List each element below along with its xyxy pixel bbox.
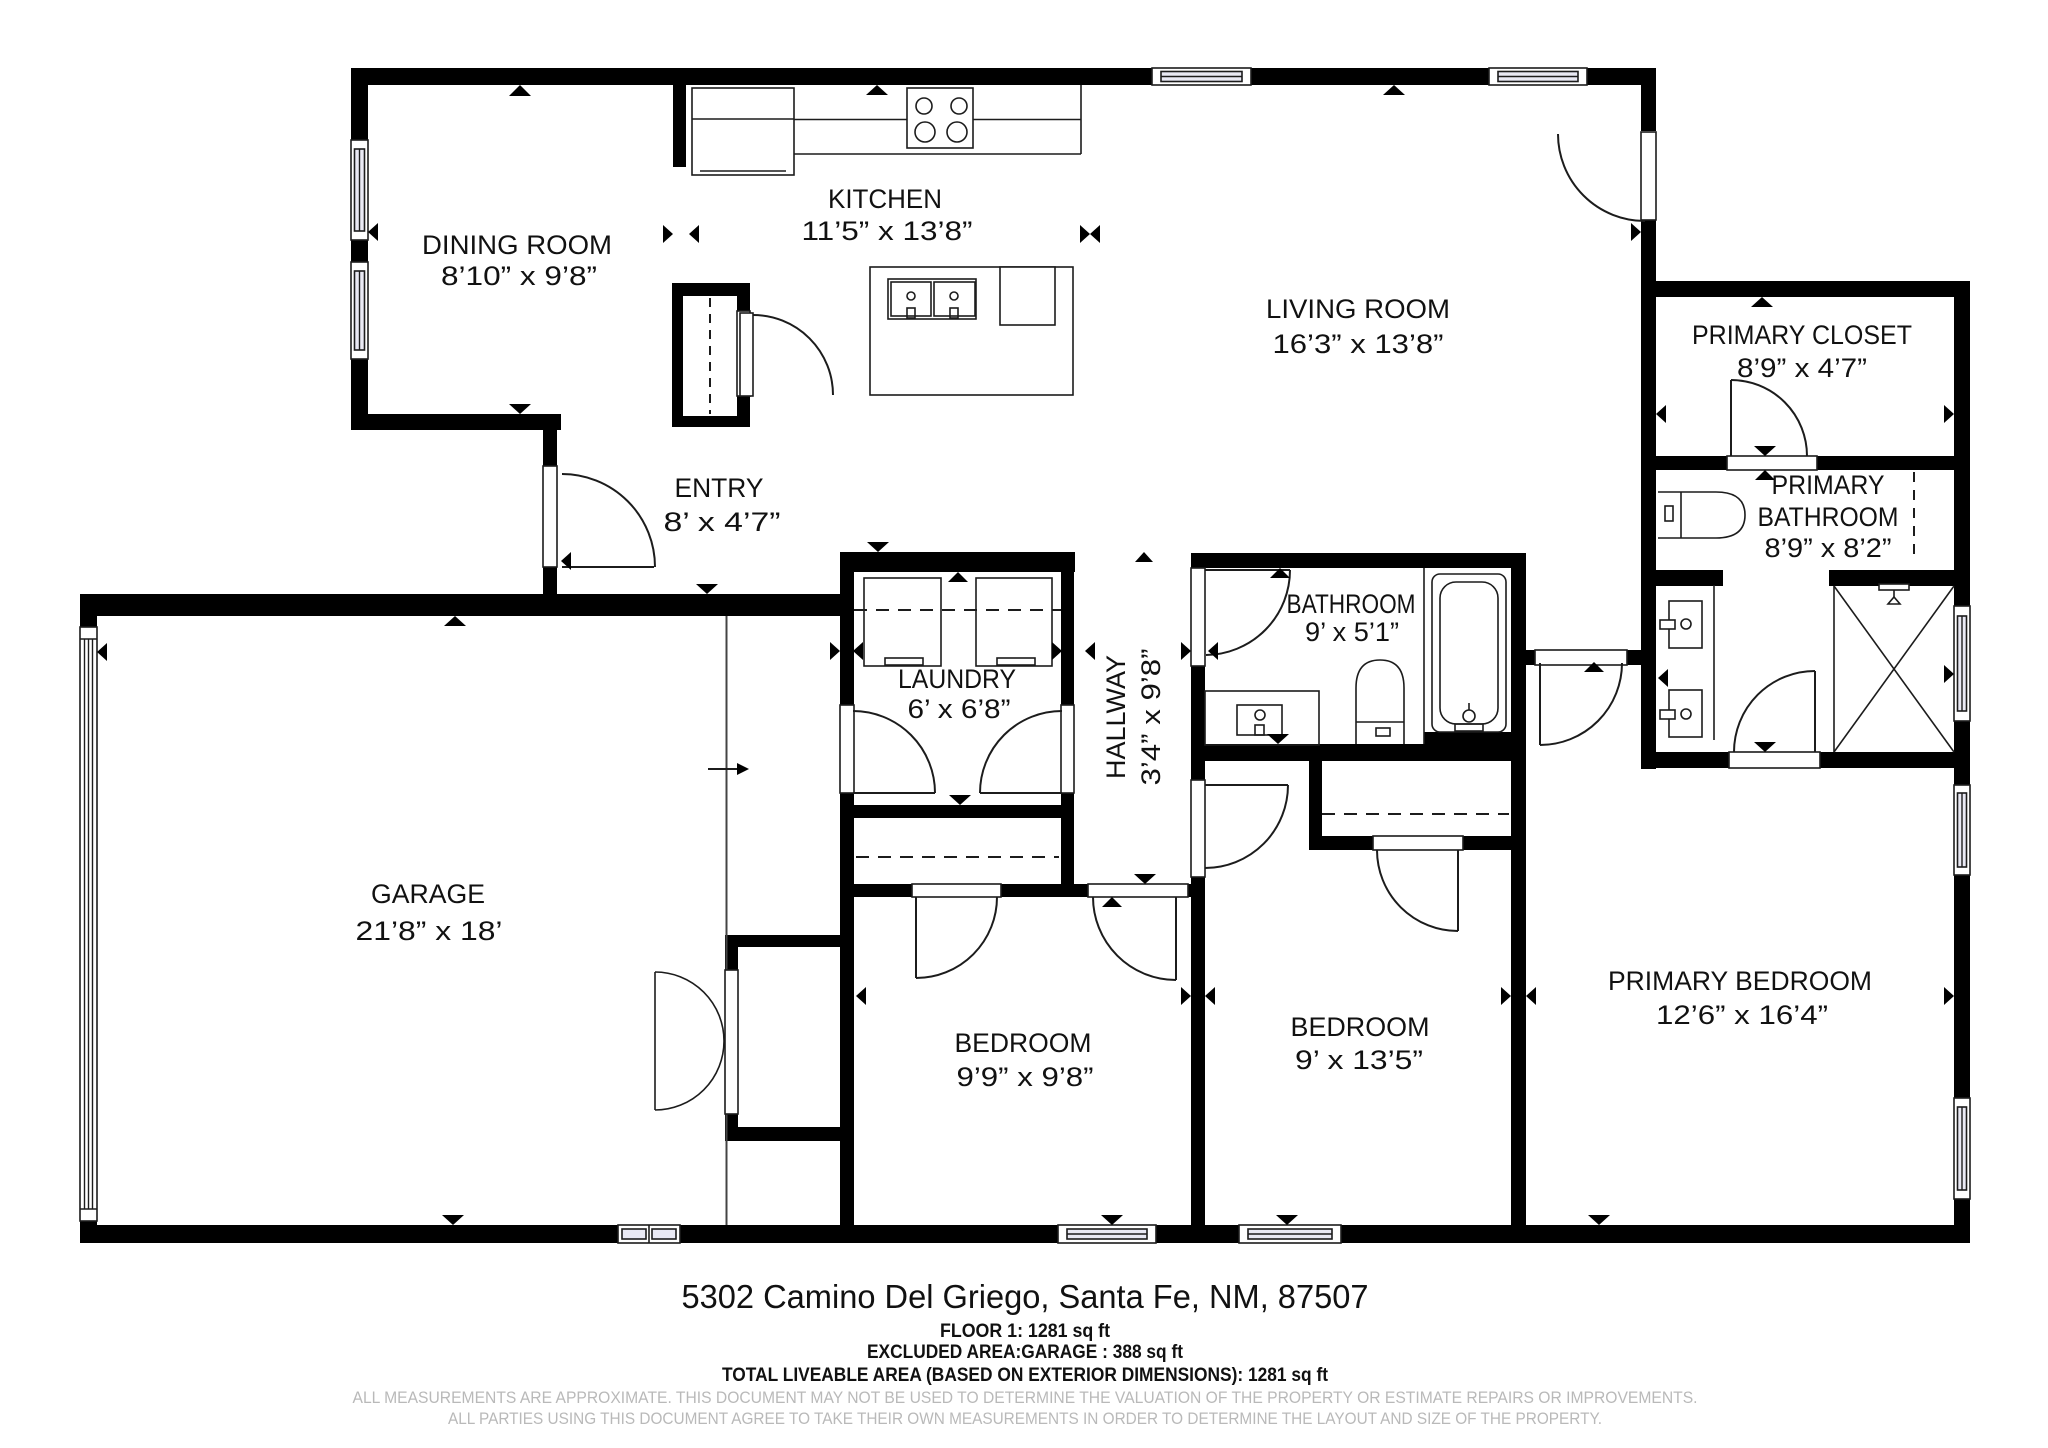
svg-text:16’3” x 13’8”: 16’3” x 13’8” [1273, 329, 1444, 359]
svg-text:9’ x 5’1”: 9’ x 5’1” [1305, 617, 1399, 647]
svg-text:BEDROOM: BEDROOM [955, 1028, 1092, 1058]
svg-text:3’4” x 9’8”: 3’4” x 9’8” [1136, 649, 1166, 786]
svg-text:BATHROOM: BATHROOM [1758, 502, 1899, 532]
svg-text:BEDROOM: BEDROOM [1291, 1012, 1430, 1042]
svg-text:LAUNDRY: LAUNDRY [898, 664, 1016, 694]
svg-text:FLOOR 1: 1281 sq ft: FLOOR 1: 1281 sq ft [940, 1321, 1111, 1342]
svg-text:PRIMARY CLOSET: PRIMARY CLOSET [1692, 320, 1912, 350]
svg-text:PRIMARY BEDROOM: PRIMARY BEDROOM [1608, 966, 1872, 996]
svg-text:8’9” x 4’7”: 8’9” x 4’7” [1737, 353, 1867, 383]
svg-text:LIVING ROOM: LIVING ROOM [1266, 294, 1450, 324]
svg-text:BATHROOM: BATHROOM [1287, 589, 1416, 619]
svg-text:PRIMARY: PRIMARY [1772, 470, 1885, 500]
svg-text:KITCHEN: KITCHEN [828, 184, 942, 214]
svg-text:8’ x 4’7”: 8’ x 4’7” [664, 507, 781, 537]
svg-text:ENTRY: ENTRY [675, 473, 764, 503]
svg-text:8’10” x 9’8”: 8’10” x 9’8” [441, 261, 597, 291]
svg-text:TOTAL LIVEABLE AREA (BASED ON: TOTAL LIVEABLE AREA (BASED ON EXTERIOR D… [722, 1365, 1329, 1386]
svg-text:GARAGE: GARAGE [371, 879, 485, 909]
svg-text:EXCLUDED AREA:GARAGE : 388 sq: EXCLUDED AREA:GARAGE : 388 sq ft [867, 1342, 1184, 1363]
svg-text:12’6” x 16’4”: 12’6” x 16’4” [1656, 1000, 1828, 1030]
svg-text:9’ x 13’5”: 9’ x 13’5” [1295, 1045, 1423, 1075]
svg-text:5302 Camino Del Griego, Santa: 5302 Camino Del Griego, Santa Fe, NM, 87… [682, 1278, 1369, 1315]
svg-text:11’5” x 13’8”: 11’5” x 13’8” [802, 216, 973, 246]
svg-text:HALLWAY: HALLWAY [1101, 655, 1131, 779]
svg-text:6’ x 6’8”: 6’ x 6’8” [908, 694, 1011, 724]
svg-text:ALL MEASUREMENTS ARE APPROXIMA: ALL MEASUREMENTS ARE APPROXIMATE. THIS D… [353, 1388, 1698, 1407]
svg-text:DINING ROOM: DINING ROOM [422, 230, 612, 260]
svg-text:9’9” x 9’8”: 9’9” x 9’8” [957, 1062, 1094, 1092]
svg-text:8’9” x 8’2”: 8’9” x 8’2” [1765, 533, 1892, 563]
svg-text:21’8” x 18’: 21’8” x 18’ [356, 916, 503, 946]
svg-text:ALL PARTIES USING THIS DOCUMEN: ALL PARTIES USING THIS DOCUMENT AGREE TO… [448, 1409, 1602, 1428]
